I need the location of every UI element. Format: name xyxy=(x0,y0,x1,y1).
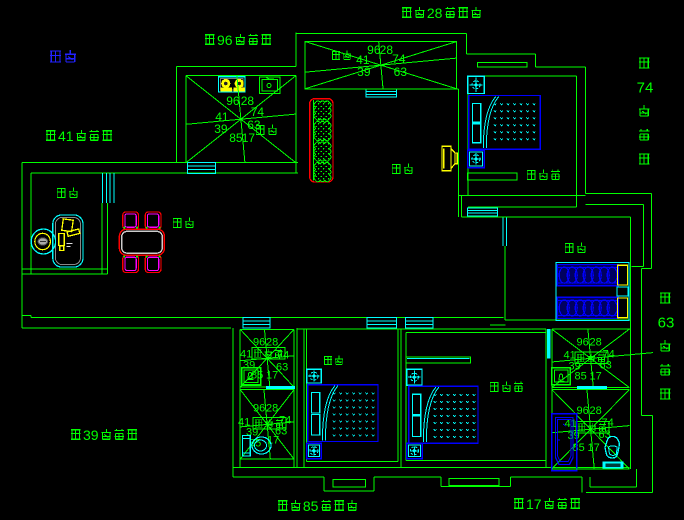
svg-text:28: 28 xyxy=(427,5,443,21)
svg-text:96: 96 xyxy=(253,402,265,414)
svg-text:17: 17 xyxy=(587,442,599,454)
svg-text:96: 96 xyxy=(576,336,588,348)
svg-text:85: 85 xyxy=(303,498,319,514)
svg-text:85: 85 xyxy=(572,442,584,454)
svg-text:28: 28 xyxy=(266,336,278,348)
svg-text:63: 63 xyxy=(658,315,675,332)
svg-text:85: 85 xyxy=(574,370,586,382)
svg-text:28: 28 xyxy=(266,402,278,414)
svg-text:28: 28 xyxy=(589,336,601,348)
svg-text:96: 96 xyxy=(253,336,265,348)
svg-text:96: 96 xyxy=(576,405,588,417)
svg-text:63: 63 xyxy=(394,65,408,79)
svg-text:74: 74 xyxy=(392,52,406,66)
svg-text:74: 74 xyxy=(601,417,613,429)
svg-text:41: 41 xyxy=(58,128,74,144)
svg-text:17: 17 xyxy=(266,369,278,381)
svg-text:39: 39 xyxy=(214,122,228,136)
svg-text:17: 17 xyxy=(242,131,256,145)
svg-text:96: 96 xyxy=(217,32,233,48)
svg-text:96: 96 xyxy=(226,94,240,108)
svg-text:17: 17 xyxy=(589,370,601,382)
svg-text:28: 28 xyxy=(589,405,601,417)
svg-text:39: 39 xyxy=(357,65,371,79)
svg-text:39: 39 xyxy=(83,427,99,443)
svg-text:74: 74 xyxy=(637,80,654,97)
svg-text:74: 74 xyxy=(251,105,265,119)
svg-text:17: 17 xyxy=(526,496,542,512)
